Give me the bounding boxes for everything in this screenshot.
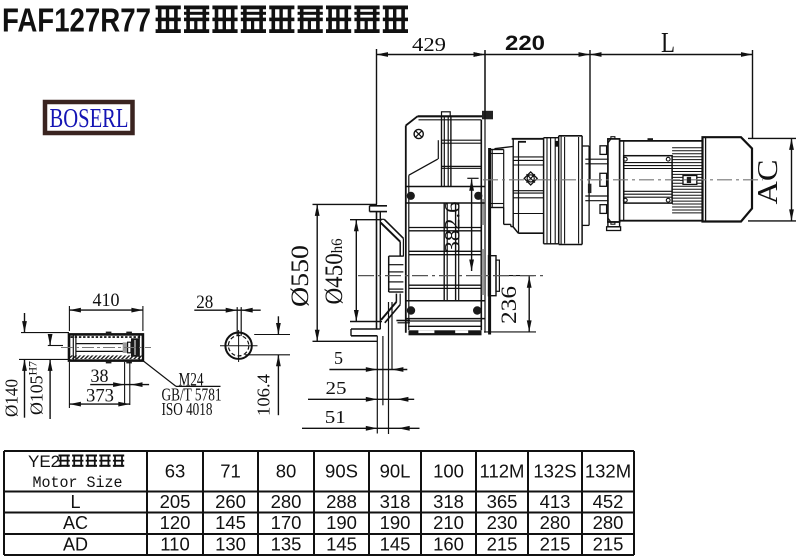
svg-text:AC: AC <box>752 160 784 205</box>
svg-text:51: 51 <box>325 407 346 427</box>
svg-text:106.4: 106.4 <box>254 374 274 416</box>
svg-text:170: 170 <box>271 512 302 533</box>
svg-text:80: 80 <box>276 461 297 482</box>
svg-text:215: 215 <box>487 534 518 555</box>
svg-text:215: 215 <box>540 534 571 555</box>
svg-text:YE2: YE2 <box>28 452 60 471</box>
svg-text:L: L <box>661 28 675 59</box>
svg-text:145: 145 <box>215 512 246 533</box>
svg-text:280: 280 <box>540 512 571 533</box>
svg-text:230: 230 <box>487 512 518 533</box>
svg-text:132M: 132M <box>585 461 631 482</box>
svg-text:280: 280 <box>271 491 302 512</box>
svg-text:Motor Size: Motor Size <box>33 474 123 492</box>
svg-text:190: 190 <box>326 512 357 533</box>
svg-text:BOSERL: BOSERL <box>50 103 129 133</box>
svg-text:160: 160 <box>433 534 464 555</box>
svg-text:38: 38 <box>91 367 109 387</box>
svg-text:413: 413 <box>540 491 571 512</box>
svg-text:FAF127R77: FAF127R77 <box>2 2 151 39</box>
svg-text:AD: AD <box>63 535 88 555</box>
svg-text:145: 145 <box>380 534 411 555</box>
svg-text:205: 205 <box>160 491 191 512</box>
svg-text:210: 210 <box>433 512 464 533</box>
svg-text:410: 410 <box>93 291 120 311</box>
svg-text:90L: 90L <box>380 461 411 482</box>
svg-text:Ø550: Ø550 <box>287 245 314 307</box>
svg-text:318: 318 <box>380 491 411 512</box>
svg-text:288: 288 <box>326 491 357 512</box>
svg-text:63: 63 <box>165 461 186 482</box>
svg-text:452: 452 <box>593 491 624 512</box>
svg-text:280: 280 <box>593 512 624 533</box>
svg-text:382.6: 382.6 <box>440 202 465 253</box>
svg-text:145: 145 <box>326 534 357 555</box>
svg-text:90S: 90S <box>325 461 358 482</box>
svg-text:25: 25 <box>326 378 347 398</box>
svg-text:Ø450h6: Ø450h6 <box>321 239 348 305</box>
svg-text:5: 5 <box>334 348 343 368</box>
svg-text:120: 120 <box>160 512 191 533</box>
svg-text:ISO 4018: ISO 4018 <box>162 399 213 419</box>
svg-text:112M: 112M <box>480 461 525 482</box>
svg-text:215: 215 <box>593 534 624 555</box>
svg-text:365: 365 <box>487 491 518 512</box>
svg-text:135: 135 <box>271 534 302 555</box>
svg-text:130: 130 <box>215 534 246 555</box>
svg-text:Ø140: Ø140 <box>2 379 22 417</box>
svg-text:236: 236 <box>496 286 521 324</box>
svg-text:L: L <box>70 492 80 512</box>
svg-text:132S: 132S <box>533 461 576 482</box>
svg-text:260: 260 <box>215 491 246 512</box>
svg-text:318: 318 <box>433 491 464 512</box>
svg-text:Ø105H7: Ø105H7 <box>26 361 47 415</box>
svg-text:373: 373 <box>86 387 114 407</box>
svg-text:190: 190 <box>380 512 411 533</box>
svg-text:220: 220 <box>505 32 545 55</box>
svg-text:100: 100 <box>433 461 464 482</box>
svg-text:429: 429 <box>412 35 446 56</box>
svg-text:AC: AC <box>63 513 88 533</box>
svg-text:28: 28 <box>196 293 213 313</box>
svg-text:71: 71 <box>220 461 241 482</box>
svg-text:110: 110 <box>160 534 190 555</box>
